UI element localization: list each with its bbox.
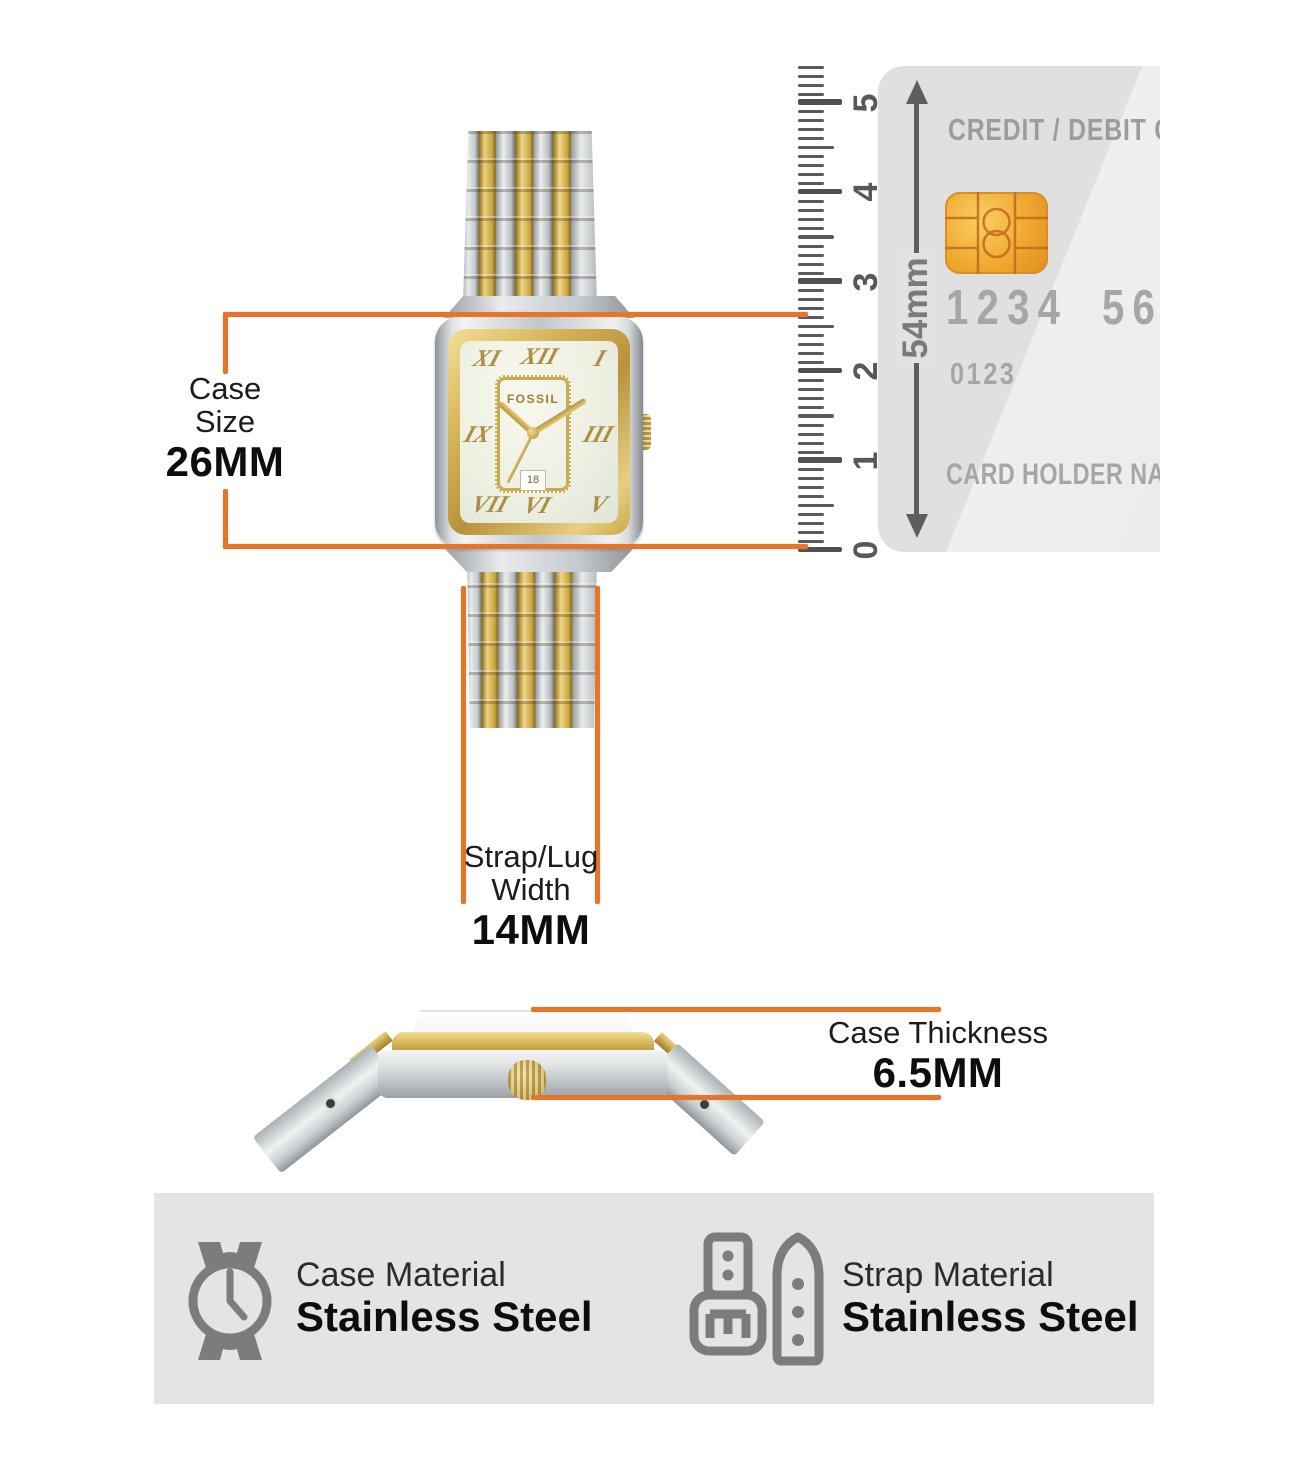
case-material-value: Stainless Steel	[296, 1293, 592, 1341]
watch-case-front: XI XII I IX III VII VI V FOSSIL 18	[435, 316, 643, 548]
materials-panel: Case Material Stainless Steel Strap Mate…	[154, 1193, 1154, 1404]
card-title: CREDIT / DEBIT C	[948, 112, 1160, 148]
ruler-tick	[798, 397, 824, 400]
case-size-bracket-lower	[223, 489, 228, 549]
ruler-tick	[798, 486, 824, 489]
ruler-tick	[798, 164, 824, 167]
watch-lug-bottom	[444, 548, 634, 572]
strap-icon	[684, 1232, 824, 1371]
date-window: 18	[520, 470, 546, 491]
ruler-tick	[798, 325, 834, 329]
ruler-tick	[798, 110, 824, 113]
strap-material-label: Strap Material	[842, 1256, 1054, 1295]
ruler-tick	[798, 254, 824, 257]
ruler-tick	[798, 531, 824, 534]
dial-numeral-9: IX	[461, 423, 494, 447]
ruler-tick	[798, 307, 824, 310]
brand-logo: FOSSIL	[500, 392, 566, 406]
card-height-label: 54mm	[896, 253, 936, 363]
ruler-number: 4	[851, 170, 881, 214]
case-thickness-label: Case Thickness 6.5MM	[788, 1016, 1088, 1097]
ruler-tick	[798, 173, 824, 176]
watch-bracelet-bottom	[466, 572, 598, 728]
ruler-tick	[798, 245, 824, 248]
ruler-number: 5	[851, 81, 881, 125]
arrow-head-down	[906, 514, 928, 538]
ruler-tick	[798, 278, 842, 284]
credit-card: 54mm CREDIT / DEBIT C 1234 56 0123 CARD …	[878, 66, 1160, 552]
ruler-tick	[798, 128, 824, 131]
dial-numeral-7: VII	[468, 493, 510, 517]
card-expiry: 0123	[950, 356, 1016, 392]
case-size-line-top	[223, 312, 808, 317]
ruler-number: 0	[851, 528, 881, 572]
dial-numeral-6: VI	[520, 494, 553, 518]
dial-numeral-11: XI	[470, 347, 503, 371]
ruler-tick	[798, 119, 824, 122]
ruler-tick	[798, 146, 834, 150]
thickness-line-top	[531, 1007, 941, 1012]
case-size-label: Case Size 26MM	[125, 372, 325, 486]
ruler: 012345	[798, 60, 888, 552]
case-size-bracket-upper	[223, 312, 228, 374]
ruler-tick	[798, 540, 824, 543]
dial-numeral-1: I	[591, 347, 608, 371]
ruler-tick	[798, 442, 824, 445]
ruler-tick	[798, 209, 824, 212]
ruler-tick	[798, 513, 824, 516]
ruler-tick	[798, 414, 834, 418]
dial-numeral-12: XII	[518, 345, 560, 369]
strap-width-label-line1: Strap/Lug	[431, 840, 631, 873]
ruler-tick	[798, 227, 824, 230]
ruler-tick	[798, 200, 824, 203]
case-size-value: 26MM	[125, 438, 325, 486]
watch-bezel-gold: XI XII I IX III VII VI V FOSSIL 18	[448, 329, 630, 535]
ruler-tick	[798, 235, 834, 239]
watch-dial: XI XII I IX III VII VI V FOSSIL 18	[460, 341, 618, 523]
ruler-tick	[798, 263, 824, 266]
side-bracelet-pin-left	[326, 1099, 335, 1108]
ruler-number: 1	[851, 439, 881, 483]
ruler-number: 3	[851, 260, 881, 304]
ruler-tick	[798, 272, 824, 275]
watch-case-icon	[176, 1240, 284, 1367]
ruler-tick	[798, 189, 842, 195]
ruler-tick	[798, 334, 824, 337]
card-number-group2: 56	[1102, 280, 1160, 336]
ruler-tick	[798, 424, 824, 427]
case-material-label: Case Material	[296, 1256, 506, 1295]
ruler-tick	[798, 155, 824, 158]
case-size-label-line1: Case	[125, 372, 325, 405]
card-number-group1: 1234	[946, 280, 1068, 336]
ruler-tick	[798, 99, 842, 105]
ruler-tick	[798, 361, 824, 364]
side-bracelet-pin-right	[700, 1100, 709, 1109]
ruler-tick	[798, 388, 824, 391]
dial-numeral-5: V	[586, 493, 610, 517]
strap-width-label-line2: Width	[431, 873, 631, 906]
ruler-tick	[798, 477, 824, 480]
case-size-label-line2: Size	[125, 405, 325, 438]
ruler-number: 2	[851, 349, 881, 393]
ruler-tick	[798, 218, 824, 221]
ruler-tick	[798, 379, 824, 382]
watch-dimension-infographic: XI XII I IX III VII VI V FOSSIL 18	[0, 0, 1316, 1468]
strap-material-value: Stainless Steel	[842, 1293, 1138, 1341]
ruler-tick	[798, 495, 824, 498]
card-chip-icon	[945, 192, 1048, 274]
ruler-tick	[798, 137, 824, 140]
strap-width-value: 14MM	[431, 906, 631, 954]
ruler-tick	[798, 84, 824, 87]
case-size-line-bottom	[223, 544, 808, 549]
ruler-tick	[798, 433, 824, 436]
ruler-tick	[798, 343, 824, 346]
ruler-tick	[798, 75, 824, 78]
side-crown	[508, 1060, 546, 1100]
ruler-tick	[798, 451, 824, 454]
card-holder-name: CARD HOLDER NAME	[946, 458, 1160, 492]
hands-center-cap	[527, 427, 539, 439]
ruler-tick	[798, 182, 824, 185]
case-thickness-value: 6.5MM	[788, 1049, 1088, 1097]
ruler-tick	[798, 66, 824, 69]
ruler-tick	[798, 368, 842, 374]
ruler-tick	[798, 504, 834, 508]
ruler-tick	[798, 406, 824, 409]
strap-width-label: Strap/Lug Width 14MM	[431, 840, 631, 954]
ruler-tick	[798, 93, 824, 96]
ruler-tick	[798, 289, 824, 292]
ruler-tick	[798, 352, 824, 355]
case-thickness-label-text: Case Thickness	[788, 1016, 1088, 1049]
dial-numeral-3: III	[580, 423, 616, 447]
watch-bracelet-top	[463, 131, 597, 303]
ruler-tick	[798, 468, 824, 471]
ruler-tick	[798, 298, 824, 301]
ruler-tick	[798, 522, 824, 525]
ruler-tick	[798, 457, 842, 463]
